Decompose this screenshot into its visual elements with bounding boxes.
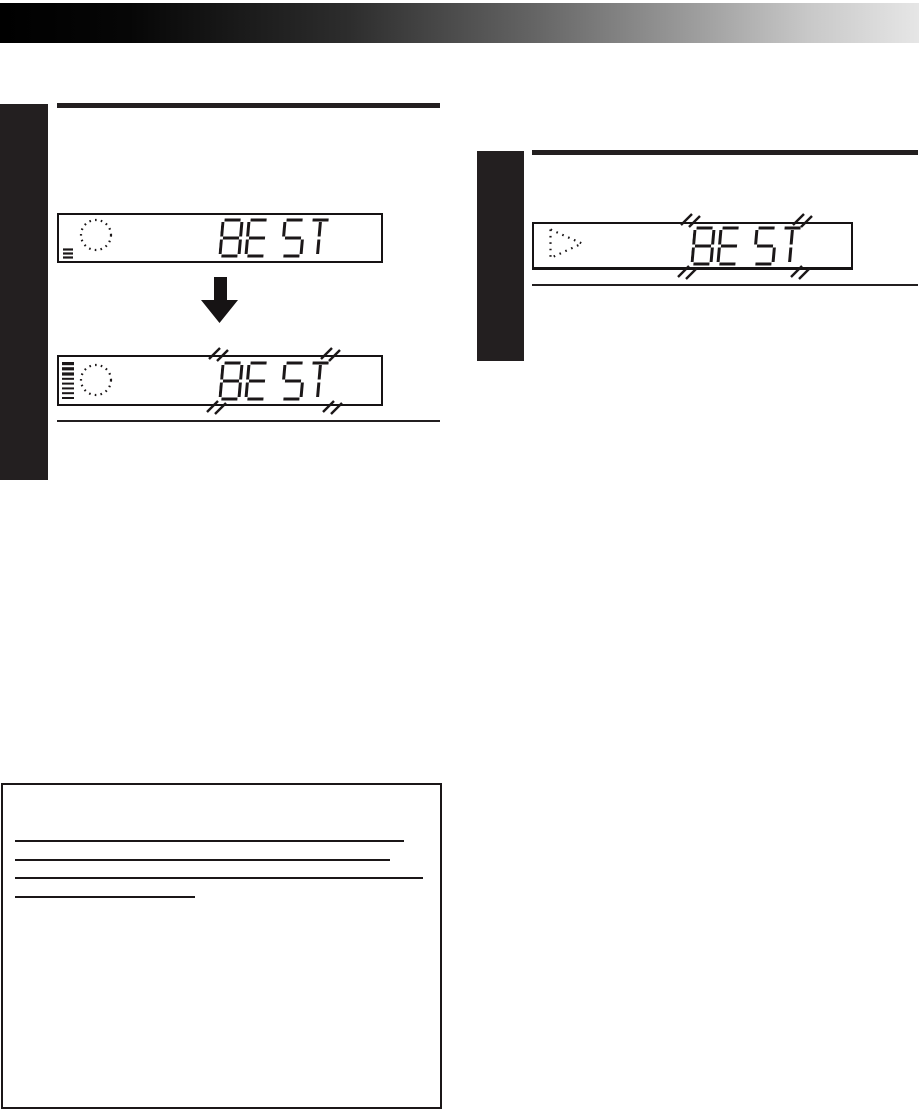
play-triangle-icon: [549, 228, 585, 260]
left-section-bottom-rule: [57, 420, 440, 422]
blink-mark-icon: [790, 264, 812, 280]
top-gradient-banner: [0, 3, 919, 43]
blink-mark-icon: [322, 399, 344, 415]
lcd-segment-text: [218, 361, 331, 401]
note-underline: [15, 877, 423, 879]
lcd-segment-text: [690, 226, 803, 266]
blink-mark-icon: [677, 264, 699, 280]
right-section-heading-rule: [532, 150, 918, 155]
lcd-display-after: [57, 355, 383, 406]
record-standby-circle-icon: [79, 218, 113, 252]
section-tab-left: [0, 104, 48, 480]
down-arrow-icon: [201, 277, 239, 323]
lcd-segment-text: [218, 218, 331, 258]
record-standby-circle-icon: [79, 363, 113, 397]
blink-mark-icon: [792, 212, 814, 228]
section-tab-right: [477, 151, 524, 361]
note-underline: [15, 896, 195, 898]
blink-mark-icon: [208, 346, 230, 362]
note-underline: [15, 840, 404, 842]
blink-mark-icon: [320, 346, 342, 362]
blink-mark-icon: [206, 399, 228, 415]
cassette-loaded-icon: [63, 248, 74, 259]
lcd-display-right: [532, 222, 853, 270]
note-underline: [15, 859, 390, 861]
manual-page: [0, 0, 919, 1111]
note-box: [1, 783, 442, 1109]
right-section-bottom-rule: [532, 284, 918, 286]
lcd-display-before: [57, 213, 383, 263]
left-section-heading-rule: [57, 103, 440, 108]
blink-mark-icon: [680, 212, 702, 228]
tape-remaining-bars-icon: [62, 362, 75, 403]
